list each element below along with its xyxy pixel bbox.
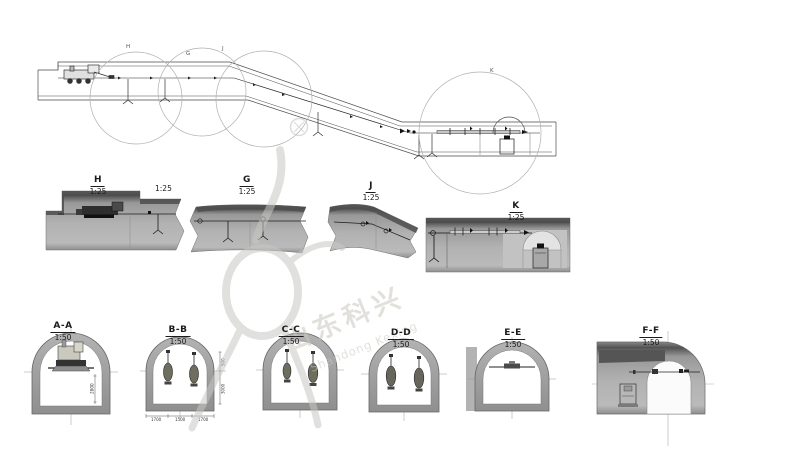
section-cc-name: C-C: [279, 326, 304, 337]
section-ff-name: F-F: [639, 327, 662, 338]
cad-drawing: H G J K: [0, 0, 800, 450]
detail-section-g: [190, 205, 308, 253]
bb-dim-bottom-left: 1700: [151, 417, 162, 422]
section-ff-scale: 1:50: [639, 339, 662, 347]
section-dd-scale: 1:50: [388, 341, 414, 349]
callout-h: H: [126, 44, 130, 50]
label-detail-h: H 1:25: [90, 167, 107, 195]
label-section-cc: C-C 1:50: [279, 317, 304, 345]
detail-k-scale: 1:25: [508, 214, 525, 222]
drawing-canvas: H G J K: [0, 0, 800, 450]
detail-j-name: J: [366, 182, 376, 193]
detail-circles: [90, 48, 541, 194]
drill-rig-icon: [64, 65, 114, 83]
detail-section-k: [426, 218, 570, 272]
callout-g: G: [186, 51, 190, 57]
callout-letters: H G J K: [126, 44, 494, 74]
detail-section-h: [46, 191, 184, 250]
callout-k: K: [490, 68, 494, 74]
section-ee-name: E-E: [501, 329, 525, 340]
section-ee-scale: 1:50: [501, 341, 525, 349]
label-section-bb: B-B 1:50: [166, 317, 191, 345]
section-dd-name: D-D: [388, 329, 414, 340]
detail-h-extra-scale: 1:25: [155, 184, 172, 193]
registered-mark-icon: [291, 119, 308, 136]
detail-h-name: H: [91, 176, 105, 187]
label-section-ee: E-E 1:50: [501, 320, 525, 348]
detail-g-scale: 1:25: [239, 188, 256, 196]
section-bb-name: B-B: [166, 326, 191, 337]
label-section-ff: F-F 1:50: [639, 318, 662, 346]
cross-section-ff: [592, 331, 714, 446]
callout-j: J: [221, 46, 224, 52]
bb-dim-lower: 3000: [221, 383, 226, 394]
label-detail-g: G 1:25: [239, 167, 256, 195]
label-detail-j: J 1:25: [363, 173, 380, 201]
detail-g-name: G: [240, 176, 254, 187]
label-detail-k: K 1:25: [508, 193, 525, 221]
bend-markers: [400, 129, 416, 134]
section-aa-name: A-A: [50, 322, 75, 333]
label-section-aa: A-A 1:50: [50, 313, 75, 341]
aa-height-dim: 2800: [90, 383, 95, 394]
duct-rod: [437, 127, 528, 136]
plan-centerline: [58, 77, 540, 134]
cross-section-dd: [361, 339, 447, 421]
section-bb-scale: 1:50: [166, 338, 191, 346]
label-section-dd: D-D 1:50: [388, 320, 414, 348]
cross-section-ee: [466, 337, 556, 419]
detail-j-scale: 1:25: [363, 194, 380, 202]
section-cc-scale: 1:50: [279, 338, 304, 346]
detail-h-scale: 1:25: [90, 188, 107, 196]
niche-and-cabinet: [480, 117, 530, 155]
section-aa-scale: 1:50: [50, 334, 75, 342]
cross-section-aa: 2800: [24, 328, 118, 425]
ff-cabinet-icon: [618, 384, 638, 407]
bb-dim-bottom-mid: 1500: [175, 417, 186, 422]
detail-k-name: K: [509, 202, 522, 213]
